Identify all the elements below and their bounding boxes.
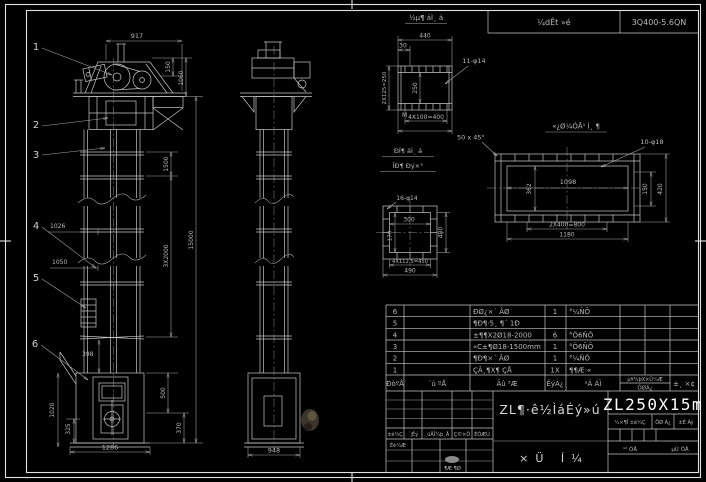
- dim-1060: 1060: [178, 70, 185, 85]
- rev-label-4: Ç©×Ö: [454, 431, 471, 438]
- sheet-type-label: ×Ü Í¼: [519, 452, 589, 465]
- detail-c-holes: 16-φ14: [396, 195, 418, 202]
- side-view-linework: [240, 42, 312, 450]
- detail-c-dim-400: 400: [438, 227, 445, 239]
- cad-drawing-sheet: ¼dÊt »é 3Q400-5.6QN: [0, 0, 706, 482]
- dim-325: 325: [65, 423, 72, 435]
- bom-header-weight-top: µ¥¼þX×Ü¼Æ: [627, 376, 663, 383]
- dim-948: 948: [268, 447, 280, 455]
- bom-header-qty: ÊýÁ¿: [546, 379, 563, 388]
- smudge-artifact: [301, 409, 319, 431]
- dim-500: 500: [160, 387, 167, 399]
- dim-3x2000: 3X2000: [163, 244, 170, 267]
- bom-row-material: °¼ÑÕ: [569, 354, 591, 363]
- detail-b-title: «¿Ø¼ÓÅ¹ Ì¸ ¶: [552, 122, 600, 131]
- detail-b-dim-420: 420: [657, 183, 664, 195]
- approve-label: ¶Æ ¶Ø: [444, 465, 461, 472]
- bom-header: ÐòºÅ ´ú ºÅ Ãû ³Æ ÊýÁ¿ ²Ä ÁÏ µ¥¼þX×Ü¼Æ ÖØ…: [386, 376, 695, 392]
- detail-a-dim-bottom: 4X100=400: [408, 114, 444, 121]
- rev-label-5: ÈÕÆÚ: [474, 430, 490, 438]
- dim-1286: 1286: [102, 444, 119, 452]
- bom-header-name: Ãû ³Æ: [496, 379, 517, 388]
- detail-b-chamfer: 50 x 45°: [457, 134, 485, 142]
- bom-row-name: «C±¶Ø18-1500mm: [473, 343, 541, 351]
- bom-row-name: ±¶¶X2Ø18-2000: [473, 331, 532, 339]
- bom-row-name: ¶Ð¶×´ ÂØ: [473, 354, 510, 363]
- detail-c-dim-170: 170: [388, 230, 394, 241]
- drawing-title: ZL¶·ê½ÌáÉý»ú: [499, 402, 600, 417]
- bom-row-qty: 1: [553, 355, 557, 363]
- detail-c-title2: ÎÐ¶ Ðý×°: [393, 161, 424, 170]
- detail-c-dim-300: 300: [403, 217, 415, 224]
- design-label: Éè¼Æ: [390, 441, 406, 449]
- stage-label: ¼×¶Î ±ê¼Ç: [615, 419, 646, 426]
- bom-rows: 6 ÐØ¿×´ ÂØ 1 °¼ÑÕ 5 ¶Ð¶·5¸ ¶´ 1Ð 4 ±¶¶X2…: [393, 307, 594, 374]
- bom-header-material: ²Ä ÁÏ: [585, 379, 603, 388]
- balloon-6: 6: [32, 339, 38, 350]
- detail-c-dim-450: 4X112.5=450: [392, 259, 428, 265]
- detail-a-dim-440: 440: [419, 33, 431, 40]
- rev-label-3: ¸üÄÎ¼þ¸Å: [425, 431, 450, 438]
- bom-table: 6 ÐØ¿×´ ÂØ 1 °¼ÑÕ 5 ¶Ð¶·5¸ ¶´ 1Ð 4 ±¶¶X2…: [386, 305, 699, 473]
- detail-b-dim-362: 362: [526, 183, 533, 195]
- detail-c: ÐÏ¶ áÌ¸ á ÎÐ¶ Ðý×° 16-φ14 300 170 400 4X…: [376, 146, 450, 278]
- dim-1050: 1050: [52, 259, 67, 266]
- detail-a-title: ½µ¶ áÌ¸ á: [409, 13, 443, 22]
- bom-row-no: 5: [393, 320, 397, 328]
- balloon-5: 5: [33, 273, 39, 284]
- bom-row-name: ¶Ð¶·5¸ ¶´ 1Ð: [473, 320, 520, 328]
- detail-c-dim-490: 490: [404, 268, 416, 275]
- bom-row-material: °Ö6ÑÕ: [569, 342, 594, 351]
- bom-row-material: ¶¶Æ·«: [569, 366, 591, 374]
- bom-header-weight-bottom: ÖØÁ¿: [637, 385, 652, 392]
- detail-a: ½µ¶ áÌ¸ á 440 30 250 2X125=250 11-φ14 M: [382, 13, 486, 134]
- header-strip-cell1: ¼dÊt »é: [537, 16, 570, 27]
- dim-150: 150: [165, 61, 172, 73]
- balloon-3: 3: [33, 150, 39, 161]
- bom-row-qty: 1: [553, 308, 557, 316]
- dim-1500: 1500: [163, 156, 170, 171]
- bom-header-remark: ±¸ ×¢: [673, 380, 695, 388]
- detail-a-holes: 11-φ14: [462, 57, 485, 65]
- detail-a-dim-left: 2X125=250: [382, 71, 388, 104]
- bom-row-name: ÇÃ¸¶X¶ ÇÅ: [473, 365, 512, 374]
- dim-1026: 1026: [50, 223, 65, 230]
- detail-b-dim-800: 2X400=800: [549, 222, 585, 229]
- bom-row-material: °Ö6ÑÕ: [569, 330, 594, 339]
- detail-a-dim-30: 30: [399, 43, 407, 50]
- signature-smudge: [445, 456, 459, 463]
- dim-917: 917: [131, 32, 143, 40]
- detail-c-title1: ÐÏ¶ áÌ¸ á: [394, 146, 422, 155]
- bom-row-no: 6: [393, 308, 398, 316]
- balloon-2: 2: [33, 120, 39, 131]
- bom-header-no: ÐòºÅ: [386, 379, 404, 388]
- dim-15000: 15000: [188, 230, 195, 249]
- balloon-1: 1: [33, 42, 39, 53]
- bom-header-code: ´ú ºÅ: [428, 379, 446, 388]
- header-strip-cell2: 3Q400-5.6QN: [632, 18, 687, 27]
- bom-row-name: ÐØ¿×´ ÂØ: [473, 307, 510, 316]
- bom-row-material: °¼ÑÕ: [569, 307, 591, 316]
- bom-row-qty: 1X: [550, 366, 559, 374]
- dim-1020: 1020: [49, 402, 56, 417]
- detail-a-label-m: M: [402, 112, 407, 119]
- bom-row-no: 2: [393, 355, 397, 363]
- detail-b: «¿Ø¼ÓÅ¹ Ì¸ ¶ 50 x 45° 10-φ18 1098 362 15…: [457, 122, 670, 243]
- bom-row-no: 1: [393, 366, 397, 374]
- drawing-canvas: ¼dÊt »é 3Q400-5.6QN: [0, 0, 706, 482]
- page-number-label: µÚ ÕÅ: [671, 446, 689, 453]
- detail-b-dim-1098: 1098: [560, 178, 577, 186]
- dim-398: 398: [82, 351, 94, 358]
- rev-label-2: ´¦Êý: [408, 430, 418, 438]
- detail-b-dim-150: 150: [642, 183, 649, 195]
- bom-row-no: 4: [393, 331, 398, 339]
- total-sheets-label: ¹² ÕÅ: [623, 446, 637, 453]
- detail-a-dim-250: 250: [412, 82, 419, 94]
- scale-label: ±È Àý: [679, 418, 694, 426]
- bom-row-no: 3: [393, 343, 397, 351]
- bom-row-qty: 1: [553, 343, 557, 351]
- balloon-4: 4: [33, 221, 39, 232]
- side-view-dimensions: 948: [248, 447, 300, 459]
- front-view-dimensions: 917 150 1060 1500 3X2000 15000 500 370 1…: [48, 32, 203, 455]
- header-strip: ¼dÊt »é 3Q400-5.6QN: [488, 11, 699, 34]
- dim-370: 370: [176, 422, 183, 434]
- weight-label: ÖØ Á¿: [655, 419, 671, 426]
- title-block: ±ê¼Ç ´¦Êý ¸üÄÎ¼þ¸Å Ç©×Ö ÈÕÆÚ Éè¼Æ ¶Æ ¶Ø …: [386, 391, 703, 473]
- rev-label-1: ±ê¼Ç: [387, 431, 403, 438]
- bom-row-qty: 6: [553, 331, 558, 339]
- model-number: ZL250X15m: [603, 395, 703, 414]
- detail-b-holes: 10-φ18: [640, 138, 663, 146]
- detail-b-dim-1180: 1180: [559, 232, 574, 239]
